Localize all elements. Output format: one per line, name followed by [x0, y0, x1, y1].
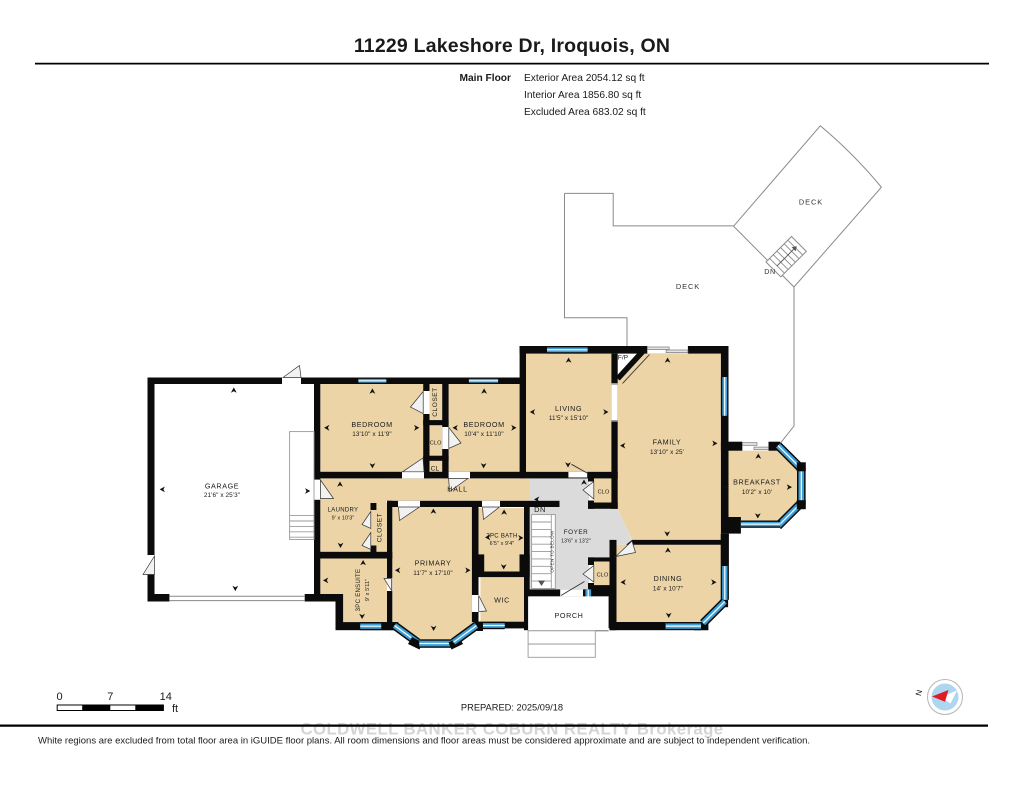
svg-text:DN: DN [764, 267, 776, 276]
svg-text:13'10" x 25': 13'10" x 25' [650, 449, 684, 456]
svg-text:CLO: CLO [598, 490, 610, 496]
svg-text:DN: DN [534, 505, 546, 514]
svg-text:11'5" x 15'10": 11'5" x 15'10" [549, 415, 589, 422]
svg-text:0: 0 [56, 691, 62, 703]
svg-text:PRIMARY: PRIMARY [415, 559, 452, 568]
svg-text:F/P: F/P [618, 355, 628, 362]
svg-text:PORCH: PORCH [555, 611, 584, 620]
svg-text:11'7" x 17'10": 11'7" x 17'10" [413, 570, 453, 577]
svg-text:CLOSET: CLOSET [432, 387, 439, 416]
svg-text:BEDROOM: BEDROOM [463, 420, 504, 429]
svg-text:Interior Area 1856.80 sq ft: Interior Area 1856.80 sq ft [524, 90, 641, 101]
svg-text:10'4" x 11'10": 10'4" x 11'10" [464, 431, 504, 438]
svg-text:3PC BATH: 3PC BATH [486, 534, 517, 540]
svg-text:7: 7 [107, 691, 113, 703]
svg-text:3PC ENSUITE: 3PC ENSUITE [356, 569, 362, 612]
svg-text:Excluded Area 683.02 sq ft: Excluded Area 683.02 sq ft [524, 107, 646, 118]
svg-text:13'6" x 13'2": 13'6" x 13'2" [561, 539, 591, 545]
svg-text:HALL: HALL [447, 485, 467, 494]
svg-text:LAUNDRY: LAUNDRY [328, 508, 359, 514]
svg-text:GARAGE: GARAGE [205, 482, 239, 491]
svg-text:9' x 5'11": 9' x 5'11" [365, 579, 371, 601]
svg-text:Exterior Area 2054.12 sq ft: Exterior Area 2054.12 sq ft [524, 73, 645, 84]
svg-text:14' x 10'7": 14' x 10'7" [653, 586, 683, 593]
svg-text:11229 Lakeshore Dr, Iroquois,: 11229 Lakeshore Dr, Iroquois, ON [354, 35, 670, 57]
svg-text:ft: ft [172, 703, 178, 715]
svg-text:13'10" x 11'9": 13'10" x 11'9" [352, 431, 392, 438]
svg-text:9' x 10'3": 9' x 10'3" [332, 516, 355, 522]
svg-text:CLOSET: CLOSET [377, 513, 384, 542]
svg-text:21'6" x 25'3": 21'6" x 25'3" [204, 492, 240, 499]
svg-text:CLO: CLO [430, 441, 442, 447]
svg-text:FOYER: FOYER [564, 529, 589, 536]
svg-text:Main Floor: Main Floor [460, 73, 512, 84]
svg-text:CL: CL [431, 466, 440, 473]
svg-text:White regions are excluded fro: White regions are excluded from total fl… [38, 735, 810, 746]
svg-text:DINING: DINING [654, 574, 683, 583]
svg-text:BREAKFAST: BREAKFAST [733, 478, 781, 487]
svg-text:OPEN TO BELOW: OPEN TO BELOW [550, 530, 555, 573]
svg-text:LIVING: LIVING [555, 404, 582, 413]
svg-text:BEDROOM: BEDROOM [351, 420, 392, 429]
svg-text:CLO: CLO [597, 573, 609, 579]
svg-text:6'5" x 9'4": 6'5" x 9'4" [490, 541, 515, 547]
svg-text:DECK: DECK [799, 198, 823, 207]
svg-text:PREPARED: 2025/09/18: PREPARED: 2025/09/18 [461, 703, 563, 713]
svg-text:WIC: WIC [494, 596, 510, 605]
svg-text:FAMILY: FAMILY [653, 438, 682, 447]
svg-text:14: 14 [160, 691, 172, 703]
svg-text:DECK: DECK [676, 282, 700, 291]
svg-text:10'2" x 10': 10'2" x 10' [742, 489, 772, 496]
svg-text:N: N [914, 689, 924, 697]
